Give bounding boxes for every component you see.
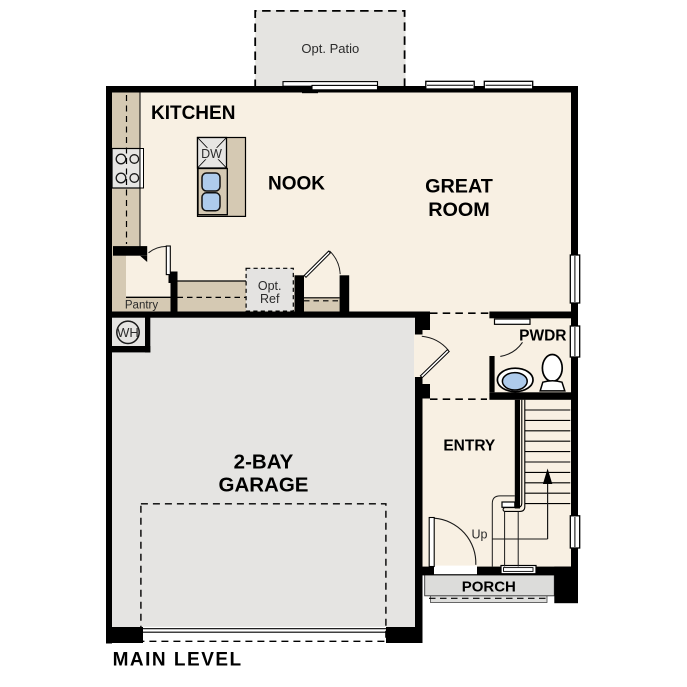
svg-text:PORCH: PORCH (462, 579, 516, 596)
svg-text:NOOK: NOOK (268, 173, 325, 194)
svg-text:KITCHEN: KITCHEN (151, 103, 235, 124)
svg-text:2-BAY: 2-BAY (234, 450, 294, 473)
svg-text:DW: DW (201, 147, 222, 161)
svg-text:Pantry: Pantry (125, 300, 158, 312)
svg-text:PWDR: PWDR (519, 327, 566, 344)
svg-text:Up: Up (472, 527, 488, 541)
svg-text:GREAT: GREAT (425, 175, 493, 197)
svg-text:GARAGE: GARAGE (219, 473, 309, 496)
svg-text:Ref: Ref (260, 292, 280, 306)
svg-text:ENTRY: ENTRY (443, 437, 496, 454)
svg-text:Opt. Patio: Opt. Patio (301, 41, 359, 56)
svg-text:WH: WH (117, 325, 139, 340)
svg-text:MAIN LEVEL: MAIN LEVEL (113, 649, 243, 670)
svg-text:ROOM: ROOM (428, 199, 490, 221)
